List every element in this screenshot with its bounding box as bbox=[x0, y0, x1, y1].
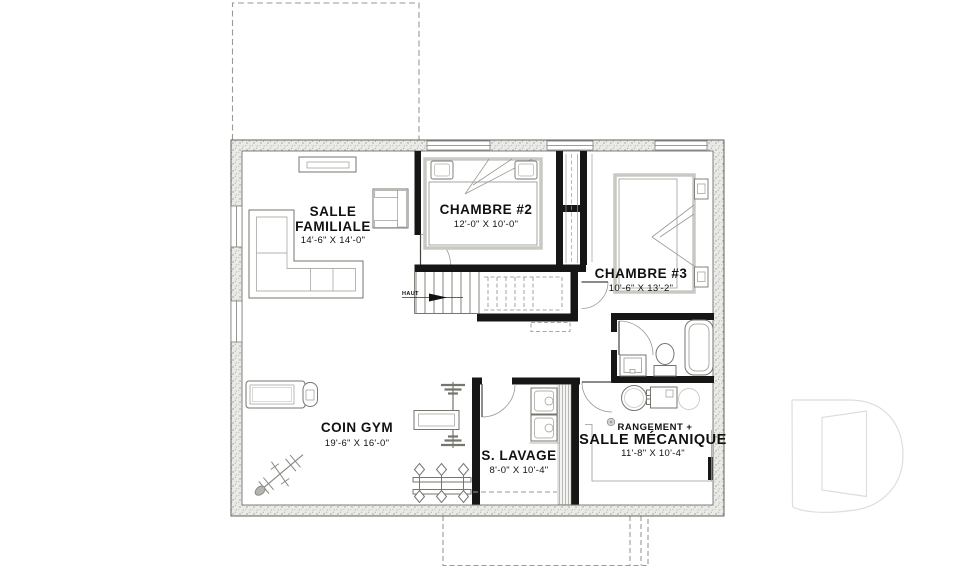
furnace bbox=[647, 387, 678, 408]
haut-label: HAUT bbox=[402, 291, 419, 297]
room-dims: 11'-8" X 10'-4" bbox=[621, 448, 685, 459]
label-s-lavage: S. LAVAGE 8'-0" X 10'-4" bbox=[481, 448, 556, 476]
tv-console bbox=[299, 157, 356, 172]
barbell bbox=[246, 443, 313, 506]
room-name: SALLE bbox=[310, 204, 357, 219]
window-left-1 bbox=[231, 206, 242, 247]
nightstand bbox=[695, 179, 709, 199]
bathroom-fixtures bbox=[620, 320, 713, 376]
window-top-2 bbox=[547, 141, 593, 150]
room-dims: 14'-6" X 14'-0" bbox=[301, 235, 366, 246]
room-dims: 10'-6" X 13'-2" bbox=[609, 283, 674, 294]
window-left-2 bbox=[231, 301, 242, 342]
laundry-appliances bbox=[530, 388, 560, 443]
bench-press bbox=[414, 382, 465, 448]
stairs-upper-run-dashed bbox=[484, 277, 570, 332]
bathtub bbox=[685, 320, 713, 375]
room-name: COIN GYM bbox=[321, 420, 393, 435]
door-lavage bbox=[482, 384, 515, 417]
armchair bbox=[373, 189, 408, 228]
room-name: CHAMBRE #2 bbox=[440, 202, 533, 217]
porch-outline-below bbox=[443, 516, 648, 566]
window-top-3 bbox=[655, 141, 707, 150]
stairs-direction: HAUT bbox=[402, 291, 463, 302]
room-dims: 19'-6" X 16'-0" bbox=[325, 438, 390, 449]
stairs-up-arrow-icon bbox=[429, 294, 447, 302]
deck-outline-above bbox=[233, 3, 420, 140]
drummond-d-logo-icon bbox=[792, 400, 903, 512]
door-mecanique bbox=[582, 382, 612, 412]
future-tank bbox=[679, 389, 700, 410]
floor-drain bbox=[607, 418, 615, 426]
basement-floorplan-page: HAUT bbox=[0, 0, 960, 569]
window-top-1 bbox=[427, 141, 490, 150]
plumbing-chase-hatch bbox=[558, 385, 571, 505]
room-name: CHAMBRE #3 bbox=[595, 266, 688, 281]
room-dims: 8'-0" X 10'-4" bbox=[490, 465, 549, 476]
weight-rack bbox=[413, 464, 471, 503]
water-heater bbox=[622, 386, 647, 411]
treadmill bbox=[246, 381, 318, 408]
nightstand bbox=[695, 267, 709, 287]
room-name: SALLE MÉCANIQUE bbox=[579, 431, 727, 448]
label-coin-gym: COIN GYM 19'-6" X 16'-0" bbox=[321, 420, 393, 449]
door-chambre3 bbox=[582, 282, 609, 309]
label-salle-familiale: SALLE FAMILIALE 14'-6" X 14'-0" bbox=[295, 204, 371, 246]
toilet bbox=[654, 344, 676, 377]
dryer bbox=[531, 415, 557, 441]
label-salle-mecanique: RANGEMENT + SALLE MÉCANIQUE 11'-8" X 10'… bbox=[579, 422, 727, 459]
sink-vanity bbox=[620, 355, 646, 376]
staircase: HAUT bbox=[402, 272, 570, 332]
floorplan-drawing: HAUT bbox=[0, 0, 960, 569]
washer bbox=[531, 388, 557, 414]
room-name: FAMILIALE bbox=[295, 219, 371, 234]
room-name: S. LAVAGE bbox=[481, 448, 556, 463]
door-bathroom bbox=[619, 321, 653, 355]
room-dims: 12'-0" X 10'-0" bbox=[454, 219, 519, 230]
